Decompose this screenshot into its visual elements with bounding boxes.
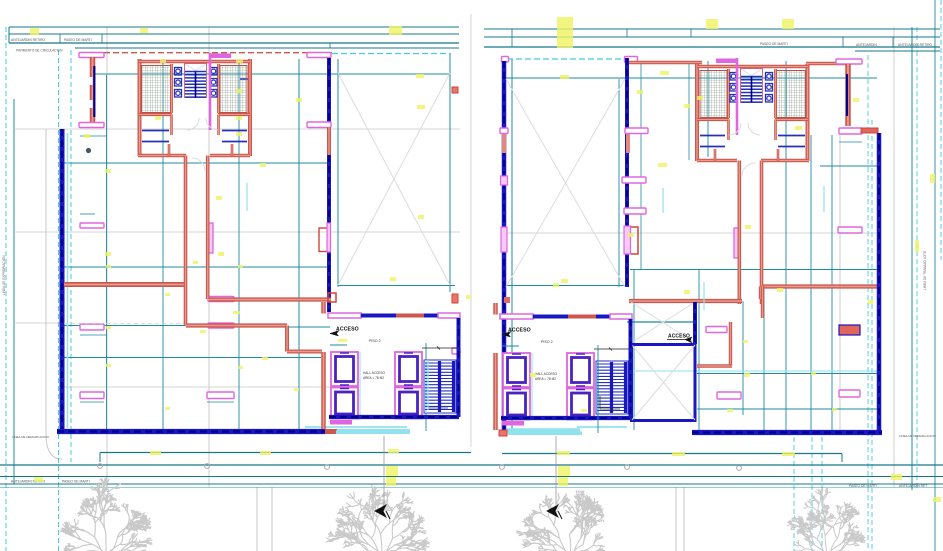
svg-text:PISO 2: PISO 2 xyxy=(369,339,381,343)
svg-text:PISO 2: PISO 2 xyxy=(541,340,553,344)
svg-text:AREA = 78 M2: AREA = 78 M2 xyxy=(363,376,384,380)
svg-text:AREA = 78 M2: AREA = 78 M2 xyxy=(535,377,556,381)
svg-text:ACCESO: ACCESO xyxy=(508,328,531,334)
svg-text:PASEO DE MARTI: PASEO DE MARTI xyxy=(760,42,788,46)
svg-text:LINEA DE DEMARCACION: LINEA DE DEMARCACION xyxy=(899,434,936,438)
svg-text:PASEO DE MARTI: PASEO DE MARTI xyxy=(849,484,877,488)
svg-text:PAVIMENTO DE CIRCULACION: PAVIMENTO DE CIRCULACION xyxy=(16,49,63,53)
svg-text:ANTEJARDIN RETIRO: ANTEJARDIN RETIRO xyxy=(11,38,46,42)
svg-text:ACCESO: ACCESO xyxy=(336,327,359,333)
svg-text:PASEO DE MARTI: PASEO DE MARTI xyxy=(62,480,90,484)
svg-text:LINEA DE TRABAJO LOTE: LINEA DE TRABAJO LOTE xyxy=(923,251,927,290)
svg-text:ANTEJARDIN RETIRO: ANTEJARDIN RETIRO xyxy=(898,43,933,47)
svg-text:LINEA DE EXPROPIACION: LINEA DE EXPROPIACION xyxy=(2,255,6,295)
svg-text:PASEO DE MARTI: PASEO DE MARTI xyxy=(64,38,92,42)
svg-text:ANTEJARDIN RET: ANTEJARDIN RET xyxy=(899,484,927,488)
svg-text:ACCESO: ACCESO xyxy=(668,334,690,340)
svg-text:HALL ACCESO: HALL ACCESO xyxy=(535,372,558,376)
svg-text:ANTEJARDIN: ANTEJARDIN xyxy=(856,43,877,47)
svg-text:HALL ACCESO: HALL ACCESO xyxy=(363,371,386,375)
svg-text:LINEA DE DEMARCACION: LINEA DE DEMARCACION xyxy=(12,435,49,439)
